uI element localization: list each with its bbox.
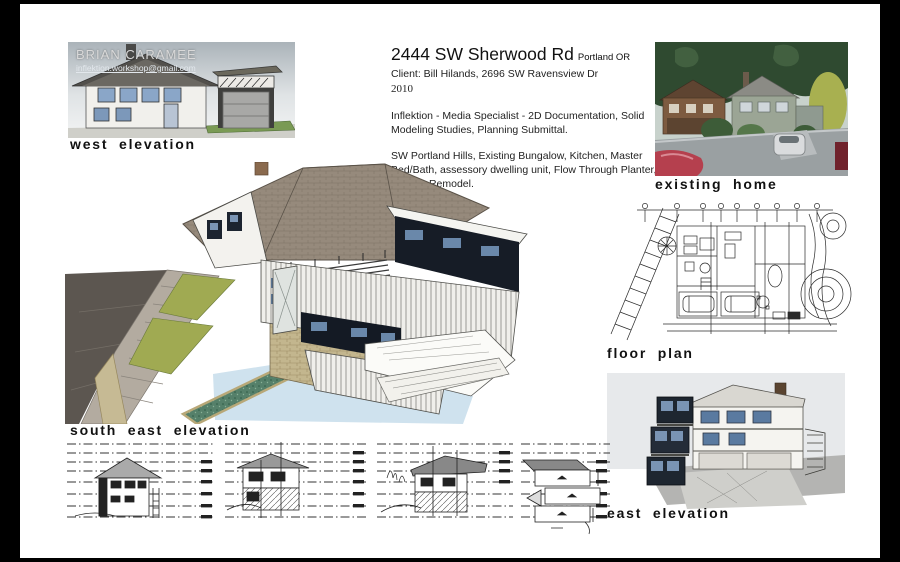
furniture — [684, 232, 782, 309]
west-elevation-image: BRIAN CARAMEE inflektion.workshop@gmail.… — [68, 42, 295, 138]
south-east-elevation-rendering — [65, 162, 610, 424]
east-elevation-label: east elevation — [607, 505, 730, 521]
section-house-4 — [523, 460, 600, 534]
section-house-1 — [75, 458, 161, 518]
east-elevation-art — [607, 373, 845, 509]
floor-plan-drawing — [605, 194, 861, 342]
section-drawings-strip — [65, 438, 610, 536]
page-sheet: BRIAN CARAMEE inflektion.workshop@gmail.… — [20, 4, 880, 558]
floor-plan-art — [605, 194, 861, 342]
chimney — [255, 162, 268, 175]
existing-home-photo-art — [655, 42, 848, 176]
services-paragraph: Inflektion - Media Specialist - 2D Docum… — [391, 110, 663, 138]
south-east-elevation-art — [65, 162, 610, 424]
hillside-stair-band — [611, 208, 679, 340]
south-east-elevation-label: south east elevation — [70, 422, 251, 438]
west-elevation-label: west elevation — [70, 136, 196, 152]
author-name-overlay: BRIAN CARAMEE — [76, 47, 197, 62]
existing-home-label: existing home — [655, 176, 778, 192]
garage-stalls — [679, 292, 759, 316]
client-line: Client: Bill Hilands, 2696 SW Ravensview… — [391, 68, 663, 82]
address-text: 2444 SW Sherwood Rd — [391, 44, 574, 64]
section-house-3 — [381, 446, 487, 516]
existing-home-photo — [655, 42, 848, 176]
section-drawings-art — [65, 438, 610, 536]
presentation-board: BRIAN CARAMEE inflektion.workshop@gmail.… — [0, 0, 900, 562]
floor-plan-label: floor plan — [607, 345, 694, 361]
trees — [658, 213, 851, 319]
project-year: 2010 — [391, 82, 663, 97]
east-elevation-image — [607, 373, 845, 509]
project-address: 2444 SW Sherwood RdPortland OR — [391, 44, 663, 65]
address-city: Portland OR — [578, 52, 630, 63]
author-email-overlay: inflektion.workshop@gmail.com — [76, 63, 196, 73]
